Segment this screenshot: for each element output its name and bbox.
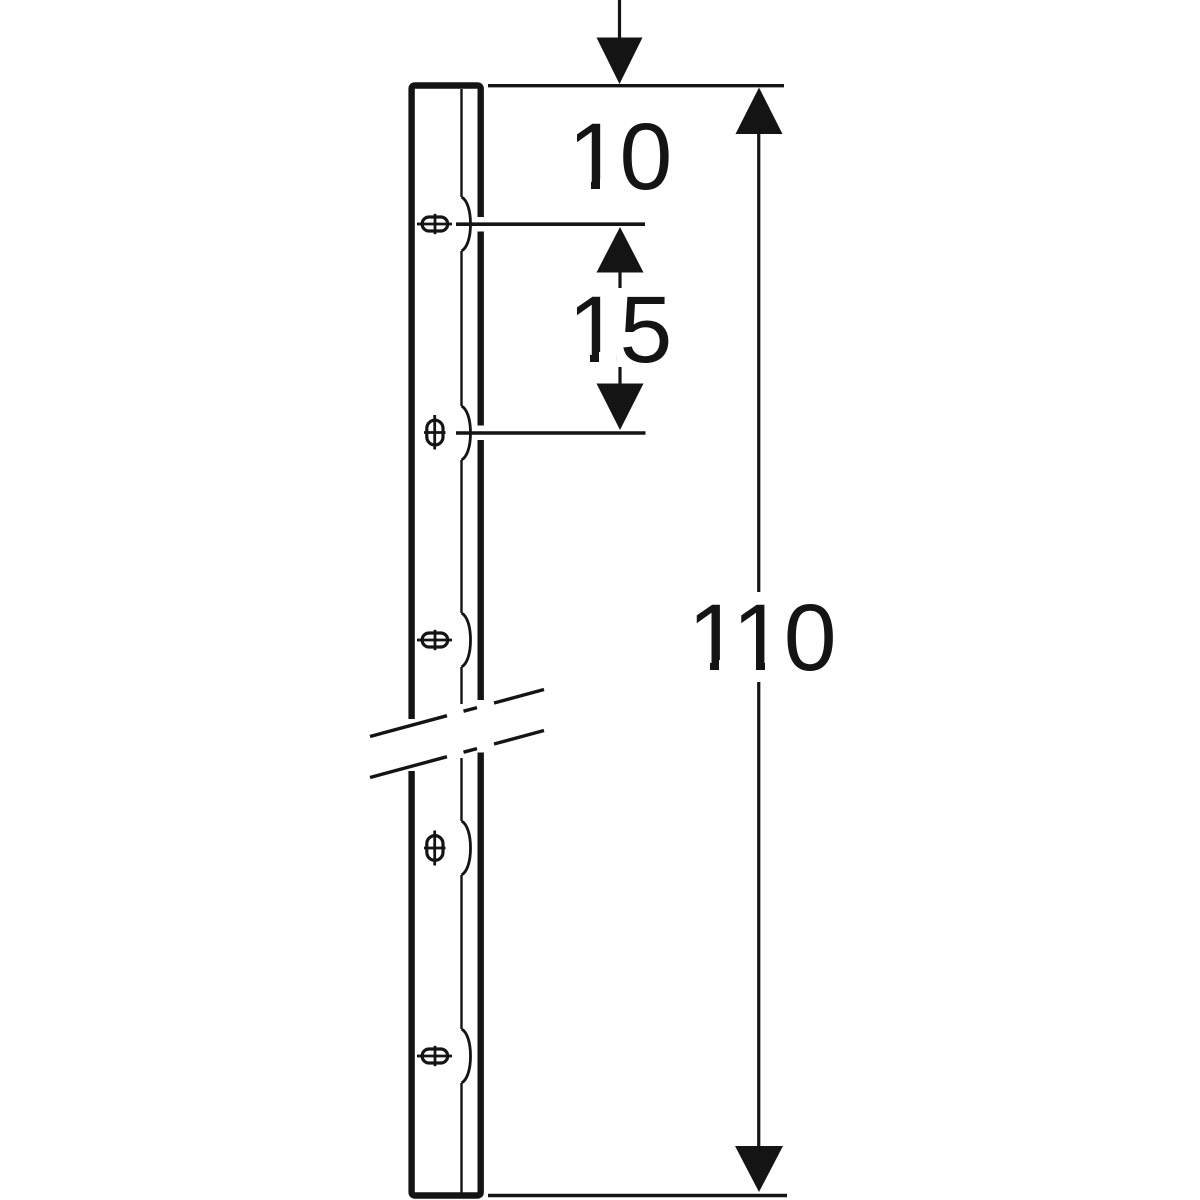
svg-text:110: 110 xyxy=(688,585,836,691)
svg-text:10: 10 xyxy=(568,104,671,210)
svg-text:15: 15 xyxy=(568,277,671,383)
